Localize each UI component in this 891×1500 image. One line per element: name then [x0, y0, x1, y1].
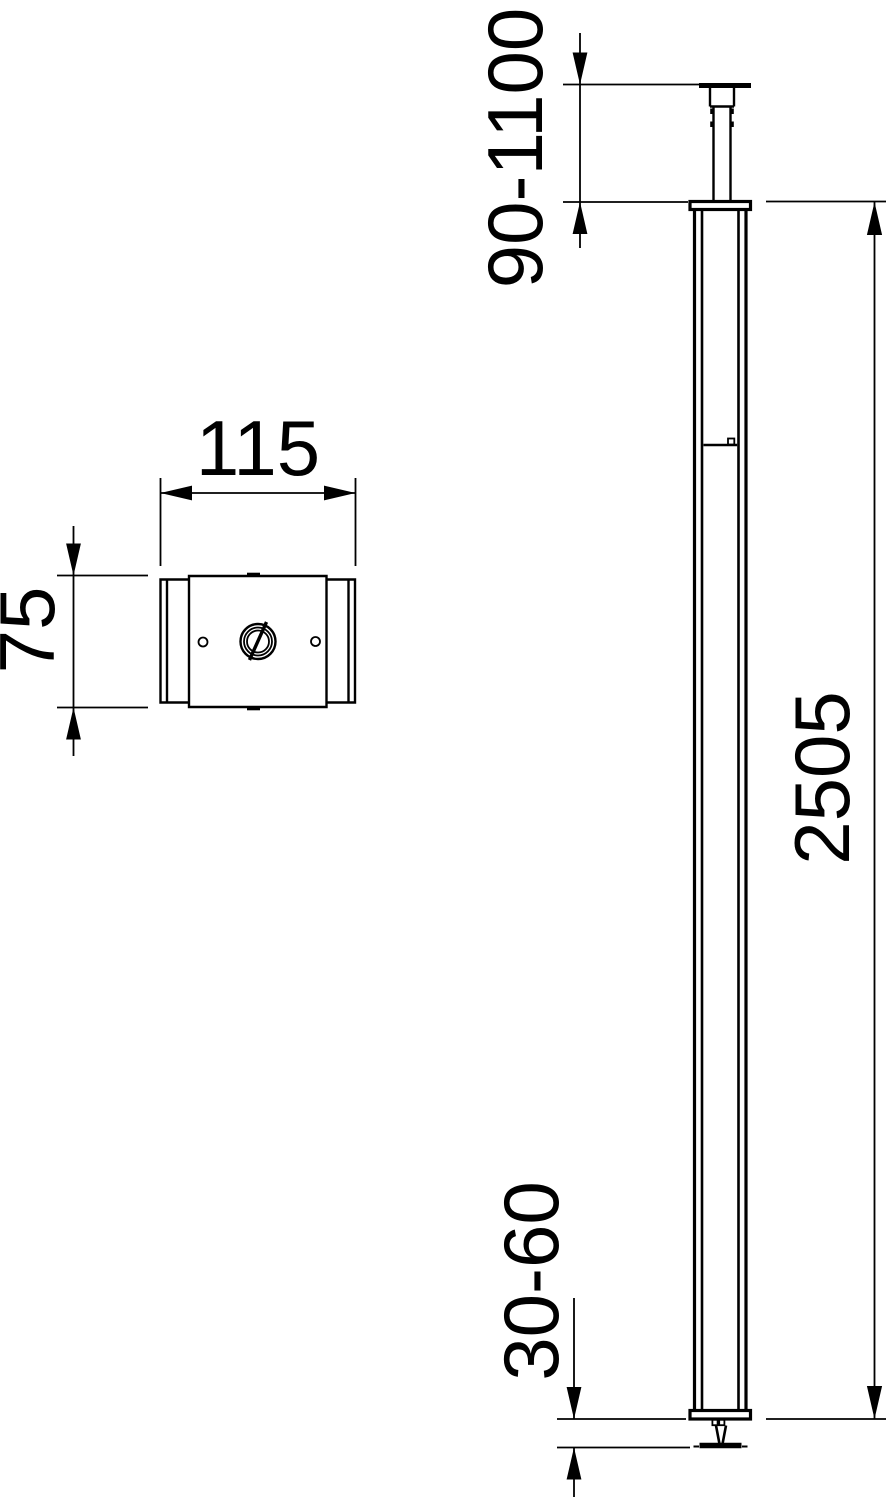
dim-label-column-height: 2505 [783, 691, 861, 865]
dimension-floor-range [557, 1298, 690, 1497]
floor-foot [694, 1420, 748, 1447]
column-elevation-view [690, 86, 751, 1447]
ceiling-collar [710, 88, 734, 107]
drawing-canvas [0, 0, 891, 1500]
technical-drawing-page: 115 75 90-1100 2505 30-60 [0, 0, 891, 1500]
dim-label-section-height: 75 [0, 587, 66, 674]
dim-label-floor-range: 30-60 [492, 1181, 570, 1381]
section-center-screw [241, 622, 276, 660]
ceiling-tube [714, 107, 731, 202]
dimension-ceiling-range [563, 33, 699, 248]
column-joint-latch [728, 439, 734, 445]
column-inner-edges [702, 210, 739, 1411]
column-bottom-cap [690, 1411, 751, 1420]
section-hole-left [199, 638, 208, 647]
dim-label-section-width: 115 [196, 409, 320, 487]
dim-label-ceiling-range: 90-1100 [476, 8, 554, 288]
section-right-flange [327, 580, 356, 703]
section-hole-right [311, 637, 320, 646]
cross-section-view [161, 574, 356, 708]
column-top-cap [690, 202, 751, 210]
section-left-flange [161, 580, 190, 703]
ceiling-clamp-ticks [712, 109, 733, 128]
